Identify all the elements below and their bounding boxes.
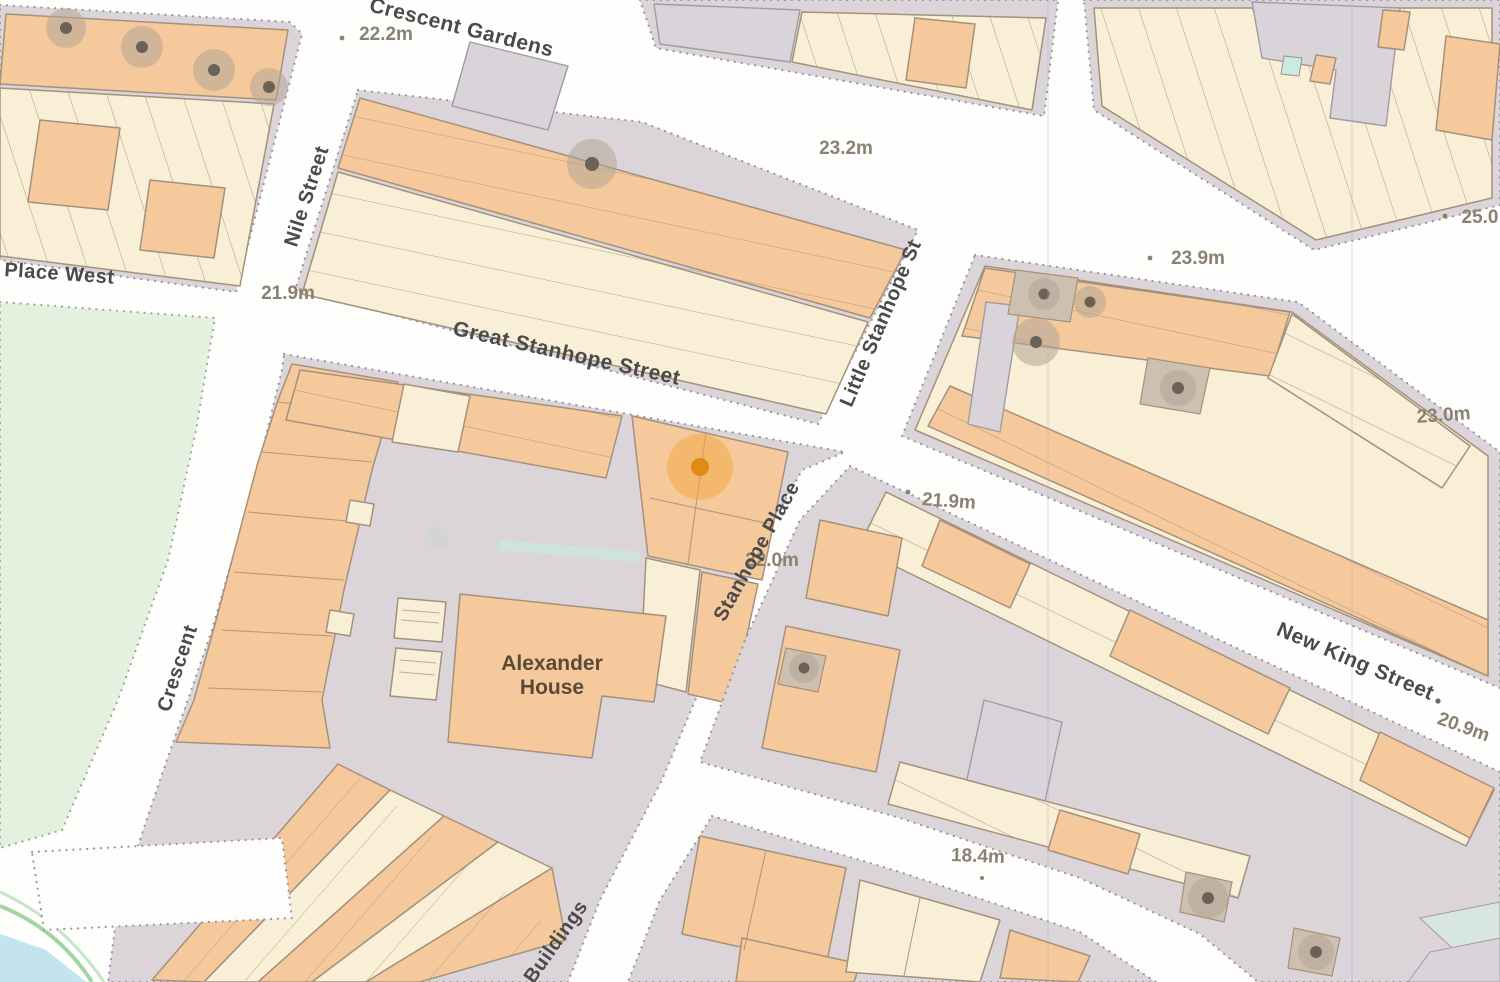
building-block-top-right xyxy=(1084,0,1500,250)
tree-icon xyxy=(1160,370,1196,406)
marker-dot xyxy=(691,458,709,476)
spot-height: 21.9m xyxy=(921,489,976,514)
building-block-top-centre xyxy=(640,0,1058,116)
tree-icon xyxy=(1012,318,1060,366)
property-marker xyxy=(667,434,733,500)
street-map: 22.2m 21.9m 23.2m 23.9m 25.0 23.0m 21.9m… xyxy=(0,0,1500,982)
tree-icon xyxy=(1298,934,1334,970)
map-canvas[interactable]: 22.2m 21.9m 23.2m 23.9m 25.0 23.0m 21.9m… xyxy=(0,0,1500,982)
spot-height: 21.9m xyxy=(261,283,315,304)
tree-icon xyxy=(121,26,163,68)
spot-height: 22.2m xyxy=(359,24,413,45)
tree-icon xyxy=(567,139,617,189)
tree-icon xyxy=(1188,878,1228,918)
tree-icon xyxy=(1074,286,1106,318)
tree-icon xyxy=(193,49,235,91)
spot-height: 20.9m xyxy=(1435,708,1493,746)
spot-height: 23.9m xyxy=(1171,248,1225,269)
spot-height: 18.4m xyxy=(951,845,1006,868)
alexander-house-label-line1: Alexander xyxy=(501,652,603,675)
tree-icon xyxy=(789,653,819,683)
spot-height: 23.2m xyxy=(819,138,873,159)
tree-icon xyxy=(250,68,288,106)
spot-height: 25.0 xyxy=(1462,207,1499,228)
spot-height: 23.0m xyxy=(1416,403,1471,428)
tree-icon xyxy=(1028,278,1060,310)
tree-icon xyxy=(46,8,86,48)
alexander-house-label-line2: House xyxy=(520,676,584,699)
